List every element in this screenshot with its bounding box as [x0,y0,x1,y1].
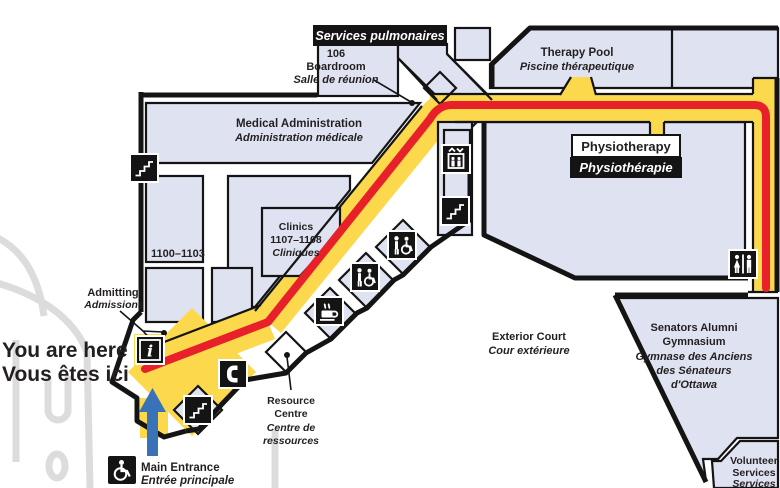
label-admitting-en: Admitting [87,287,138,299]
label-gym-fr2: des Sénateurs [656,365,731,377]
label-services-pulmonaires: Services pulmonaires [315,29,444,43]
label-gym-fr3: d'Ottawa [671,379,717,391]
label-main-entrance-fr: Entrée principale [141,475,235,487]
label-resource-en2: Centre [274,408,307,420]
label-medical-admin-fr: Administration médicale [234,132,363,144]
floor-plan-map: i [0,0,780,488]
information-icon [135,335,165,365]
you-are-here-fr: Vous êtes ici [2,363,129,386]
label-clinics-num: 1107–1108 [270,234,322,246]
label-physiotherapy-fr: Physiothérapie [579,160,672,175]
label-resource-en1: Resource [267,395,315,407]
label-resource-fr1: Centre de [267,422,316,434]
label-physiotherapy-en: Physiotherapy [581,139,671,154]
label-gym-en1: Senators Alumni [651,322,738,334]
label-volunteer-fr1: Services [732,478,775,488]
label-boardroom-fr: Salle de réunion [294,74,379,86]
room-therapy-pool [490,28,778,88]
label-clinics-fr: Cliniques [272,247,319,259]
accessible-washroom-icon [387,230,417,260]
wheelchair-entrance-icon [108,456,136,484]
label-1100-1103: 1100–1103 [151,248,205,260]
accessible-washroom-icon [350,262,380,292]
label-therapy-pool-en: Therapy Pool [541,47,614,59]
label-exterior-court-en: Exterior Court [492,331,566,343]
label-gym-fr1: Gymnase des Anciens [636,351,753,363]
label-exterior-court-fr: Cour extérieure [488,345,569,357]
telephone-icon [218,359,248,389]
label-clinics-en: Clinics [279,221,314,233]
you-are-here-en: You are here [2,339,128,362]
label-boardroom-en: Boardroom [306,61,366,73]
label-resource-fr2: ressources [263,435,319,447]
label-medical-admin-en: Medical Administration [236,118,362,130]
stairs-icon [440,196,470,226]
washroom-icon [728,249,758,279]
label-volunteer-en1: Volunteer [730,455,778,467]
stairs-icon [129,153,159,183]
elevator-icon [441,144,471,174]
label-gym-en2: Gymnasium [663,336,726,348]
label-boardroom-num: 106 [327,48,345,60]
label-admitting-fr: Admissions [83,299,144,311]
stairs-icon [183,395,213,425]
label-main-entrance-en: Main Entrance [141,462,220,474]
room-small-top [455,28,490,60]
coffee-shop-icon [314,296,344,326]
label-therapy-pool-fr: Piscine thérapeutique [520,61,634,73]
